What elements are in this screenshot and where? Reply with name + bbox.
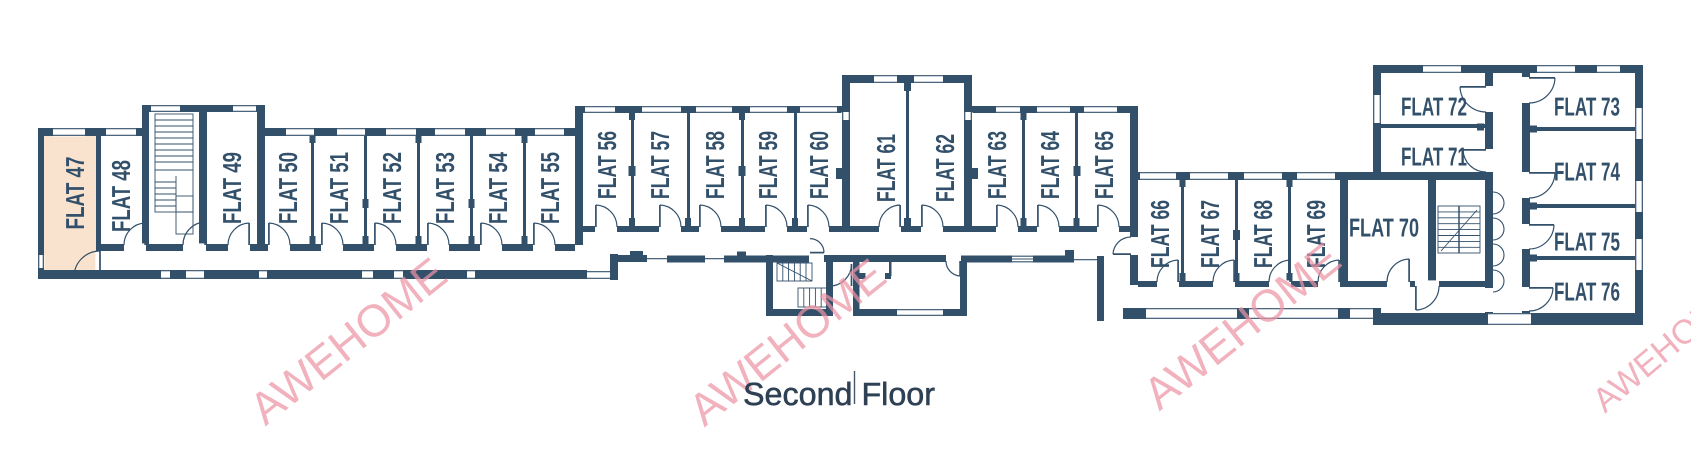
svg-text:FLAT 56: FLAT 56 bbox=[592, 131, 622, 199]
svg-text:FLAT 63: FLAT 63 bbox=[982, 131, 1012, 199]
svg-text:FLAT 76: FLAT 76 bbox=[1554, 277, 1620, 307]
svg-text:Second Floor: Second Floor bbox=[743, 376, 935, 412]
svg-text:FLAT 68: FLAT 68 bbox=[1248, 200, 1278, 268]
svg-text:FLAT 47: FLAT 47 bbox=[60, 157, 90, 230]
svg-text:FLAT 48: FLAT 48 bbox=[106, 160, 136, 232]
svg-text:FLAT 55: FLAT 55 bbox=[535, 152, 565, 224]
svg-text:FLAT 58: FLAT 58 bbox=[700, 131, 730, 199]
svg-text:FLAT 50: FLAT 50 bbox=[273, 152, 303, 224]
svg-text:FLAT 49: FLAT 49 bbox=[217, 152, 247, 224]
svg-text:FLAT 52: FLAT 52 bbox=[377, 152, 407, 224]
svg-text:FLAT 72: FLAT 72 bbox=[1401, 92, 1467, 122]
svg-text:FLAT 65: FLAT 65 bbox=[1089, 131, 1119, 199]
svg-text:FLAT 57: FLAT 57 bbox=[645, 131, 675, 199]
svg-text:FLAT 53: FLAT 53 bbox=[430, 152, 460, 224]
svg-text:FLAT 66: FLAT 66 bbox=[1145, 200, 1175, 268]
svg-text:FLAT 60: FLAT 60 bbox=[804, 131, 834, 199]
svg-text:FLAT 71: FLAT 71 bbox=[1401, 142, 1467, 172]
svg-text:FLAT 51: FLAT 51 bbox=[324, 152, 354, 224]
svg-text:FLAT 61: FLAT 61 bbox=[871, 134, 901, 202]
svg-text:FLAT 73: FLAT 73 bbox=[1554, 92, 1620, 122]
svg-text:FLAT 74: FLAT 74 bbox=[1554, 157, 1620, 187]
svg-text:FLAT 62: FLAT 62 bbox=[930, 134, 960, 202]
svg-text:FLAT 67: FLAT 67 bbox=[1195, 200, 1225, 268]
svg-text:FLAT 70: FLAT 70 bbox=[1349, 213, 1419, 243]
svg-text:FLAT 59: FLAT 59 bbox=[753, 131, 783, 199]
svg-text:FLAT 54: FLAT 54 bbox=[483, 152, 513, 224]
svg-text:FLAT 75: FLAT 75 bbox=[1554, 227, 1620, 257]
svg-text:FLAT 64: FLAT 64 bbox=[1035, 131, 1065, 199]
